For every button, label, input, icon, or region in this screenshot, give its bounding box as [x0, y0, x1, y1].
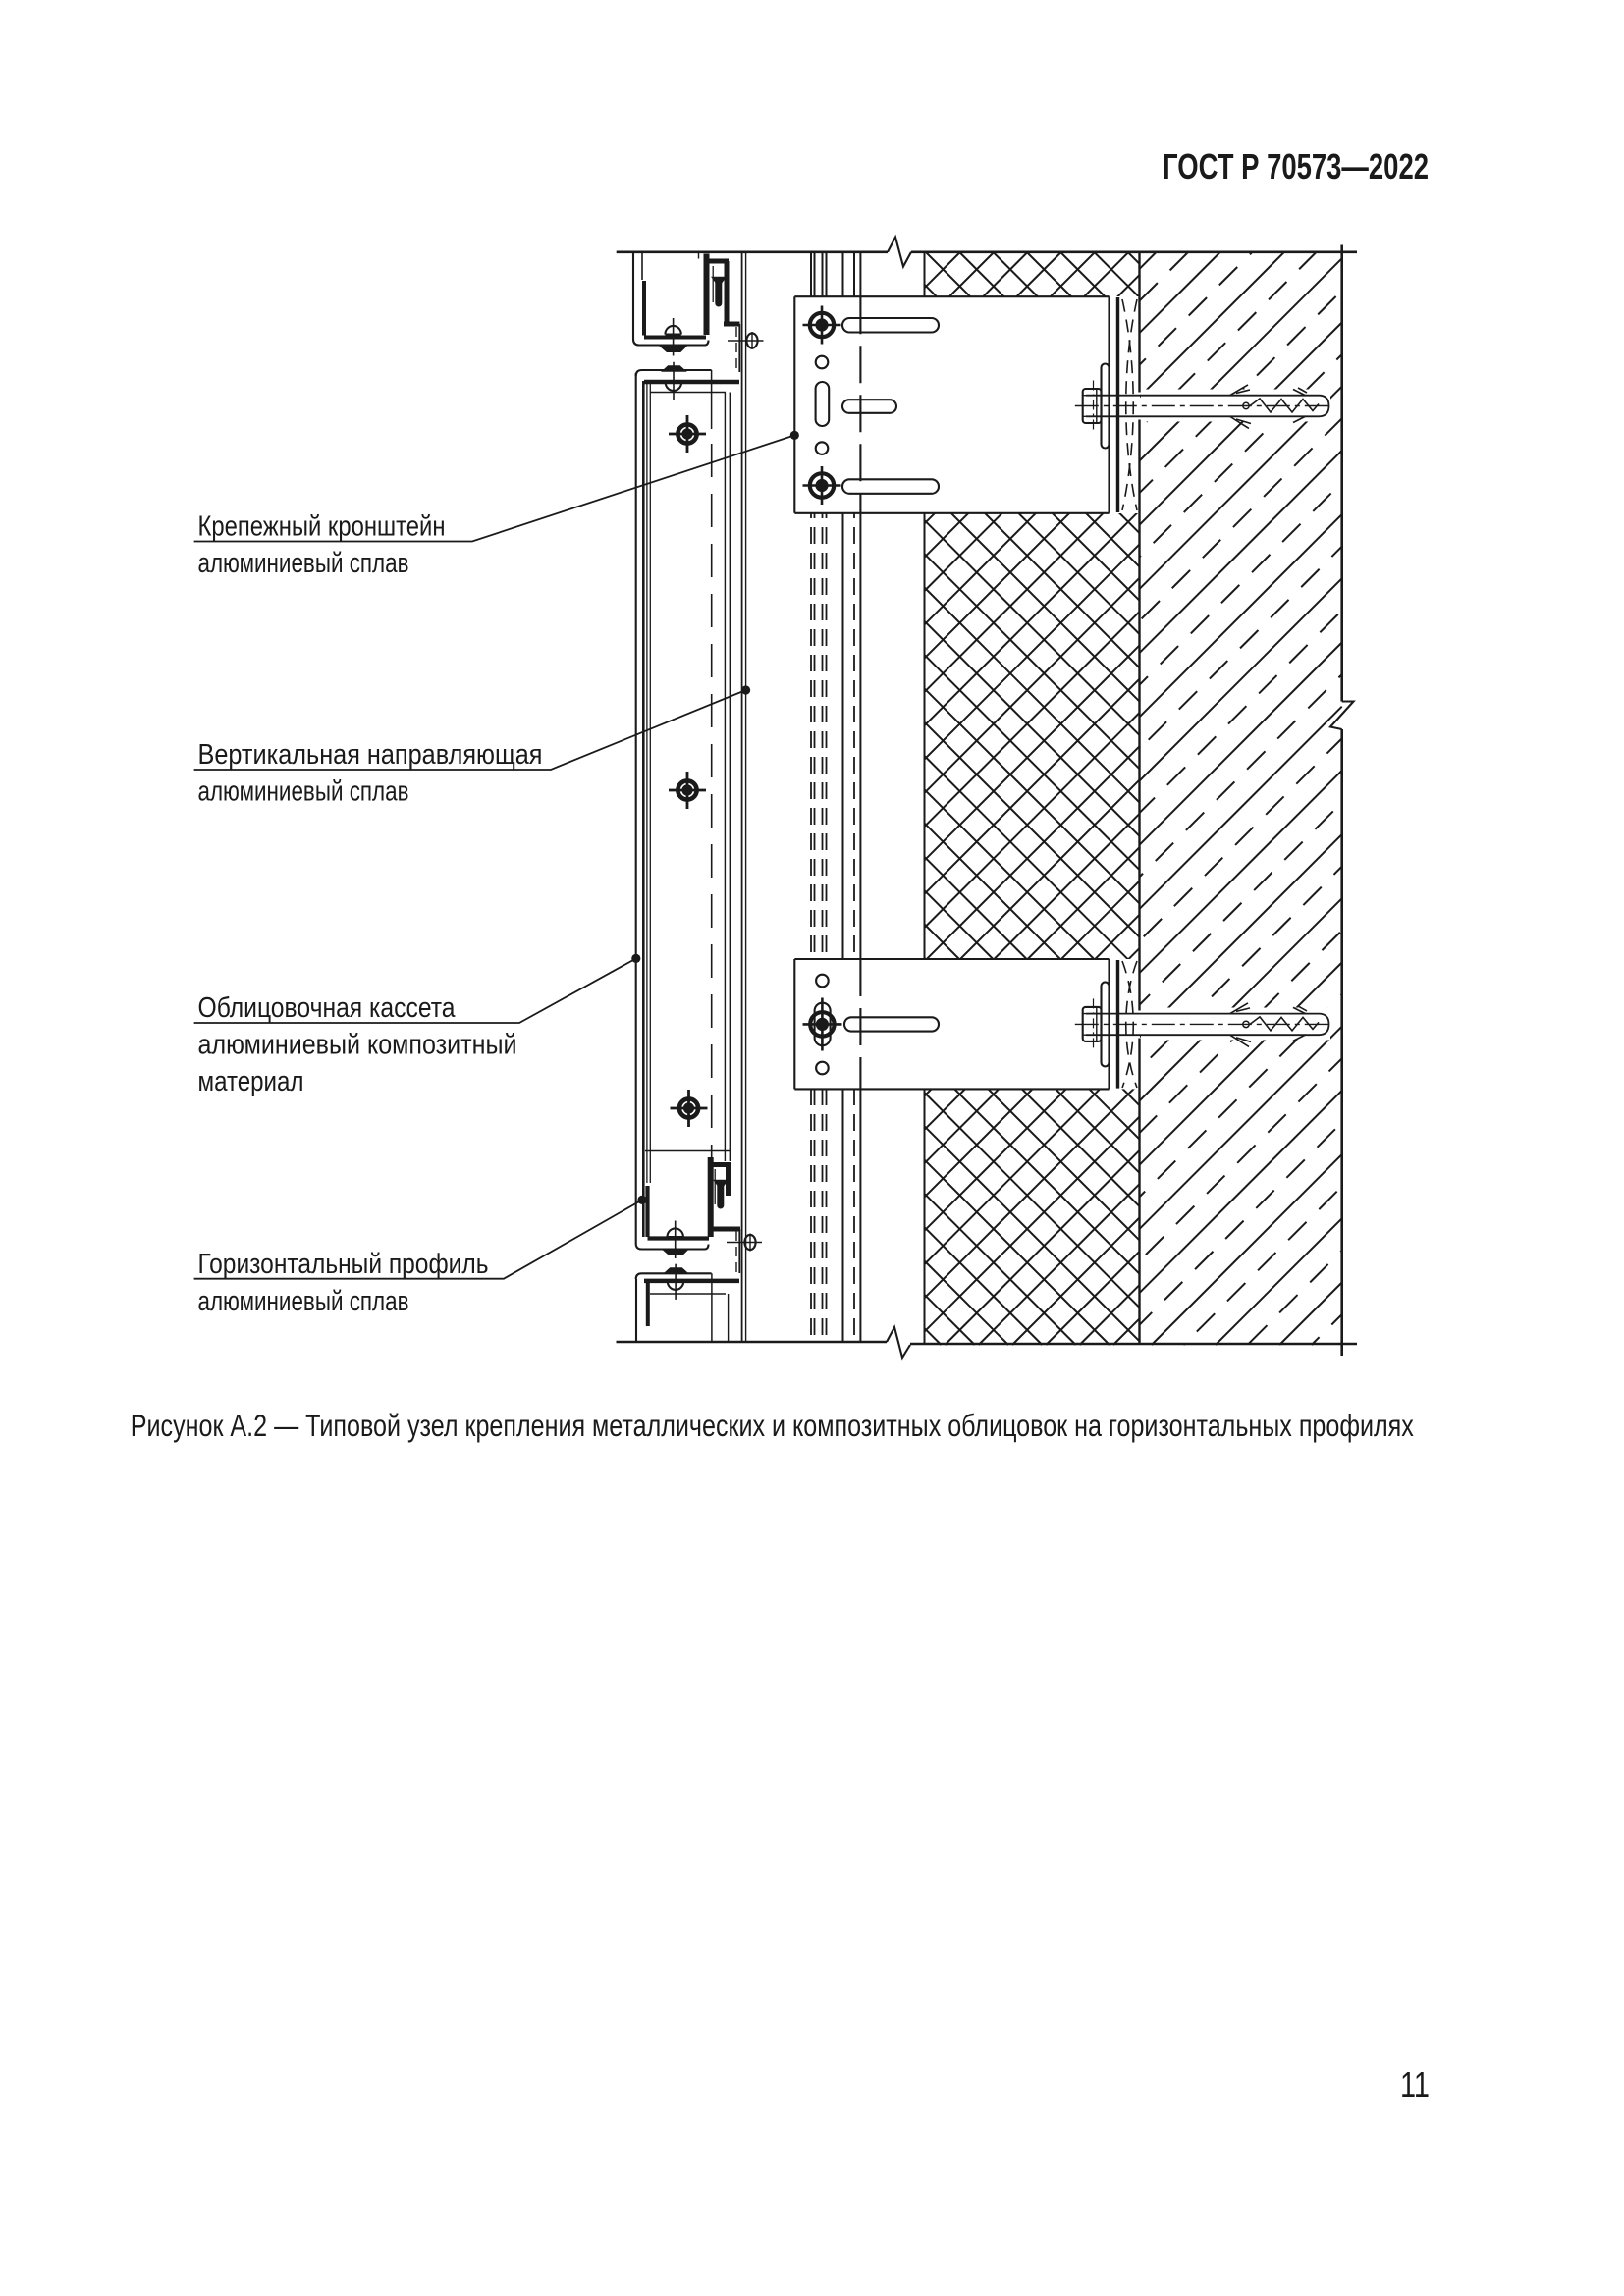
svg-text:Горизонтальный профиль: Горизонтальный профиль	[198, 1249, 489, 1280]
svg-text:Вертикальная направляющая: Вертикальная направляющая	[198, 739, 543, 771]
svg-text:Крепежный кронштейн: Крепежный кронштейн	[198, 511, 446, 543]
svg-text:Облицовочная кассета: Облицовочная кассета	[198, 992, 456, 1024]
svg-text:алюминиевый сплав: алюминиевый сплав	[198, 1286, 409, 1317]
svg-text:алюминиевый сплав: алюминиевый сплав	[198, 776, 409, 808]
svg-text:алюминиевый композитный: алюминиевый композитный	[198, 1030, 517, 1061]
svg-text:Рисунок А.2 — Типовой узел кре: Рисунок А.2 — Типовой узел крепления мет…	[131, 1408, 1414, 1443]
svg-text:алюминиевый сплав: алюминиевый сплав	[198, 548, 409, 579]
svg-text:ГОСТ Р 70573—2022: ГОСТ Р 70573—2022	[1163, 146, 1429, 187]
svg-text:11: 11	[1400, 2064, 1430, 2105]
svg-text:материал: материал	[198, 1066, 304, 1097]
